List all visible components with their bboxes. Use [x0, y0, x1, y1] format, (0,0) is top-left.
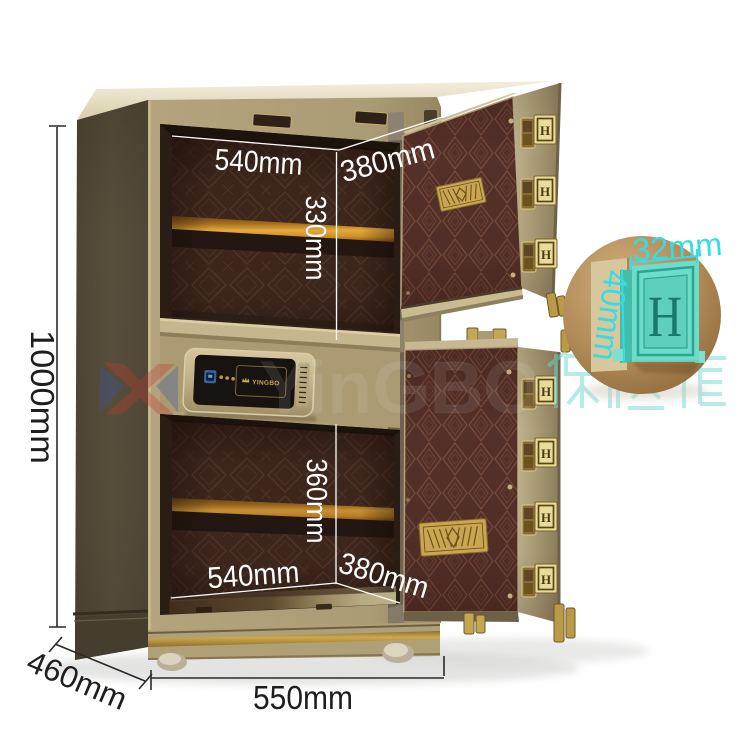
svg-text:YinGBO: YinGBO — [260, 346, 541, 429]
svg-text:330mm: 330mm — [299, 196, 331, 281]
svg-text:540mm: 540mm — [206, 556, 300, 595]
svg-text:360mm: 360mm — [300, 459, 332, 544]
svg-text:1000mm: 1000mm — [24, 330, 61, 464]
svg-text:H: H — [540, 123, 550, 138]
svg-text:32mm: 32mm — [631, 226, 723, 268]
svg-text:H: H — [648, 284, 682, 349]
svg-text:540mm: 540mm — [214, 143, 304, 181]
svg-text:550mm: 550mm — [253, 679, 353, 716]
